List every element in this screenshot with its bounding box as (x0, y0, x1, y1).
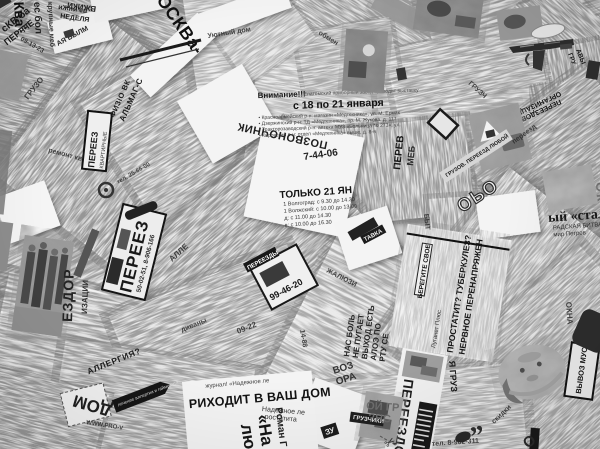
svg-text:ЕЗДОР: ЕЗДОР (59, 268, 77, 322)
svg-text:ИЗАЦИИ: ИЗАЦИИ (80, 280, 90, 314)
svg-text:ОКНА: ОКНА (564, 302, 575, 325)
svg-text:ес бол: ес бол (31, 2, 45, 35)
svg-text:МЕБ: МЕБ (405, 145, 417, 166)
svg-text:Внимание!!!: Внимание!!! (257, 89, 305, 100)
svg-text:?НС: ?НС (368, 412, 391, 426)
svg-text:лю: лю (237, 422, 260, 449)
